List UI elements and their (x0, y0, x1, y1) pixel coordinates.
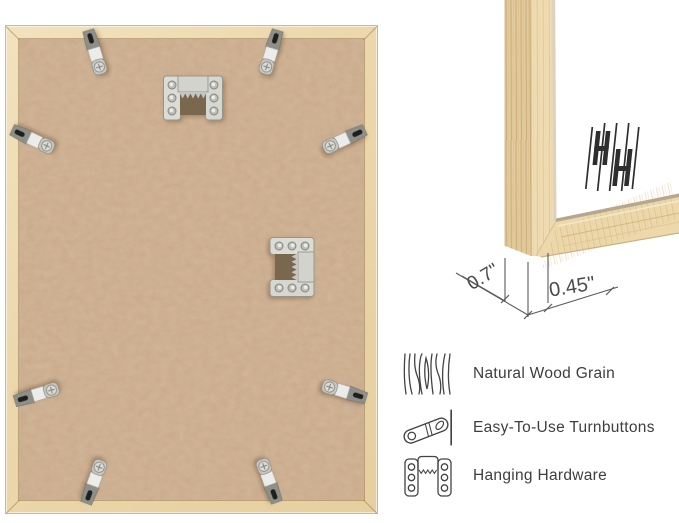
frame-back-view (6, 26, 377, 513)
product-image: 0.7" 0.45" Natural Wood Grain (0, 0, 679, 523)
miter-joint (363, 500, 377, 514)
miter-joint (363, 26, 377, 40)
sawtooth-hanger-top (163, 74, 223, 122)
brand-logo-icon (585, 123, 640, 191)
frame-corner-detail: 0.7" 0.45" (440, 0, 679, 335)
face-width-dimension-label: 0.45" (548, 273, 597, 302)
turnbutton-icon (400, 406, 456, 450)
miter-joint (6, 500, 20, 514)
feature-label: Hanging Hardware (473, 467, 607, 485)
feature-row-hanging-hardware: Hanging Hardware (400, 453, 607, 498)
feature-row-turnbuttons: Easy-To-Use Turnbuttons (400, 406, 655, 450)
depth-dimension-label: 0.7" (464, 260, 503, 295)
hanging-hardware-icon (400, 453, 456, 498)
feature-label: Natural Wood Grain (473, 365, 615, 383)
wood-grain-icon (400, 351, 456, 397)
feature-row-wood-grain: Natural Wood Grain (400, 351, 615, 397)
sawtooth-hanger-side (268, 237, 316, 297)
miter-joint (6, 26, 20, 40)
feature-label: Easy-To-Use Turnbuttons (473, 419, 655, 437)
